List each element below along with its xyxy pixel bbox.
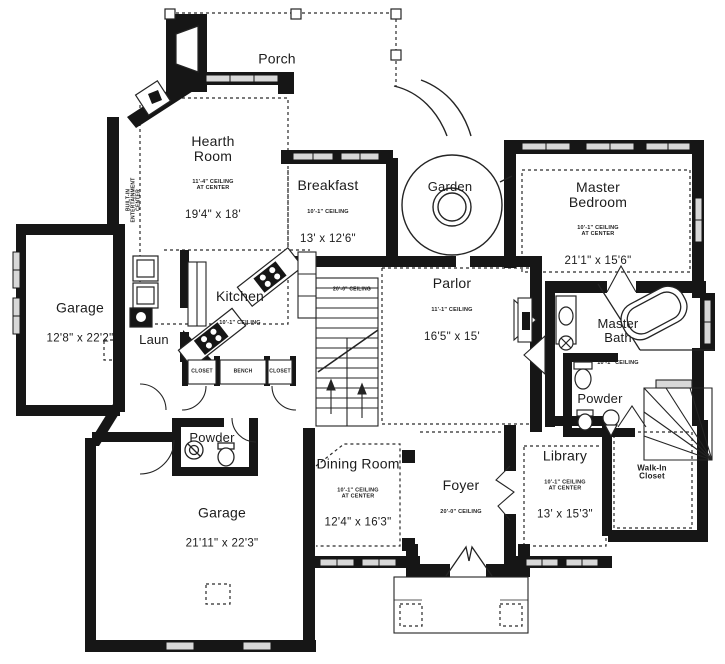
stairs [316, 278, 378, 426]
toilet-icon-bath [574, 362, 592, 389]
double-door-icon [446, 547, 469, 576]
floor-plan-drawing [0, 0, 725, 664]
wall-break-symbol [496, 466, 514, 520]
kitchen-island [237, 248, 302, 306]
parlor-niche [518, 298, 532, 342]
garden-turret [394, 80, 512, 255]
powder-left-fixtures [185, 441, 234, 466]
floor-plan: Porch Hearth Room 11'-4" CEILING AT CENT… [0, 0, 725, 664]
bath-vanity-sink [556, 296, 576, 350]
washer-dryer-icons [130, 256, 158, 327]
walls [16, 14, 715, 652]
